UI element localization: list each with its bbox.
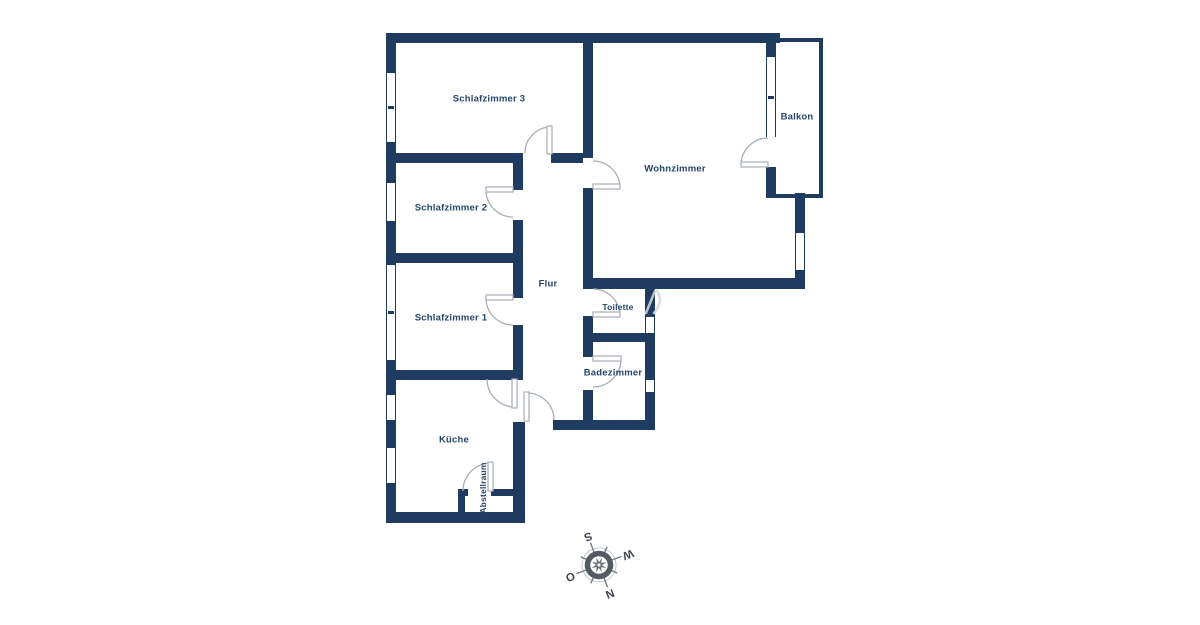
door-leaf: [524, 392, 529, 421]
compass-rose-icon: N O S W: [539, 505, 659, 625]
door-leaf: [486, 187, 513, 192]
room-label-badezimmer: Badezimmer: [584, 368, 643, 379]
room-label-balkon: Balkon: [781, 112, 814, 123]
room-label-toilette: Toilette: [602, 302, 633, 312]
compass-group: N O S W: [553, 517, 646, 611]
door-leaf: [512, 379, 517, 408]
room-label-schlafzimmer-3: Schlafzimmer 3: [453, 94, 526, 105]
door-leaf: [593, 184, 620, 189]
door-arc: [486, 190, 513, 217]
door-leaf: [741, 162, 768, 167]
door-leaf: [488, 462, 493, 491]
room-label-wohnzimmer: Wohnzimmer: [644, 164, 705, 175]
floor-plan: Schlafzimmer 3 Schlafzimmer 2 Schlafzimm…: [0, 0, 1200, 600]
room-label-flur: Flur: [539, 279, 558, 290]
compass-letter-n: N: [604, 586, 616, 600]
compass-letter-e: O: [564, 569, 577, 583]
room-label-schlafzimmer-2: Schlafzimmer 2: [415, 203, 488, 214]
room-label-abstellraum: Abstellraum: [478, 462, 488, 513]
compass-letter-s: S: [582, 529, 594, 543]
room-label-kueche: Küche: [439, 435, 469, 446]
compass-letter-w: W: [621, 546, 636, 561]
door-leaf: [593, 312, 620, 317]
watermark-fragment: [646, 291, 660, 313]
door-leaf: [486, 295, 513, 300]
door-arc: [487, 379, 515, 407]
door-arc: [741, 138, 768, 165]
door-arc: [527, 393, 554, 420]
door-leaf: [593, 356, 621, 361]
door-leaf: [547, 126, 552, 154]
door-arc: [486, 298, 513, 325]
room-label-schlafzimmer-1: Schlafzimmer 1: [415, 313, 488, 324]
